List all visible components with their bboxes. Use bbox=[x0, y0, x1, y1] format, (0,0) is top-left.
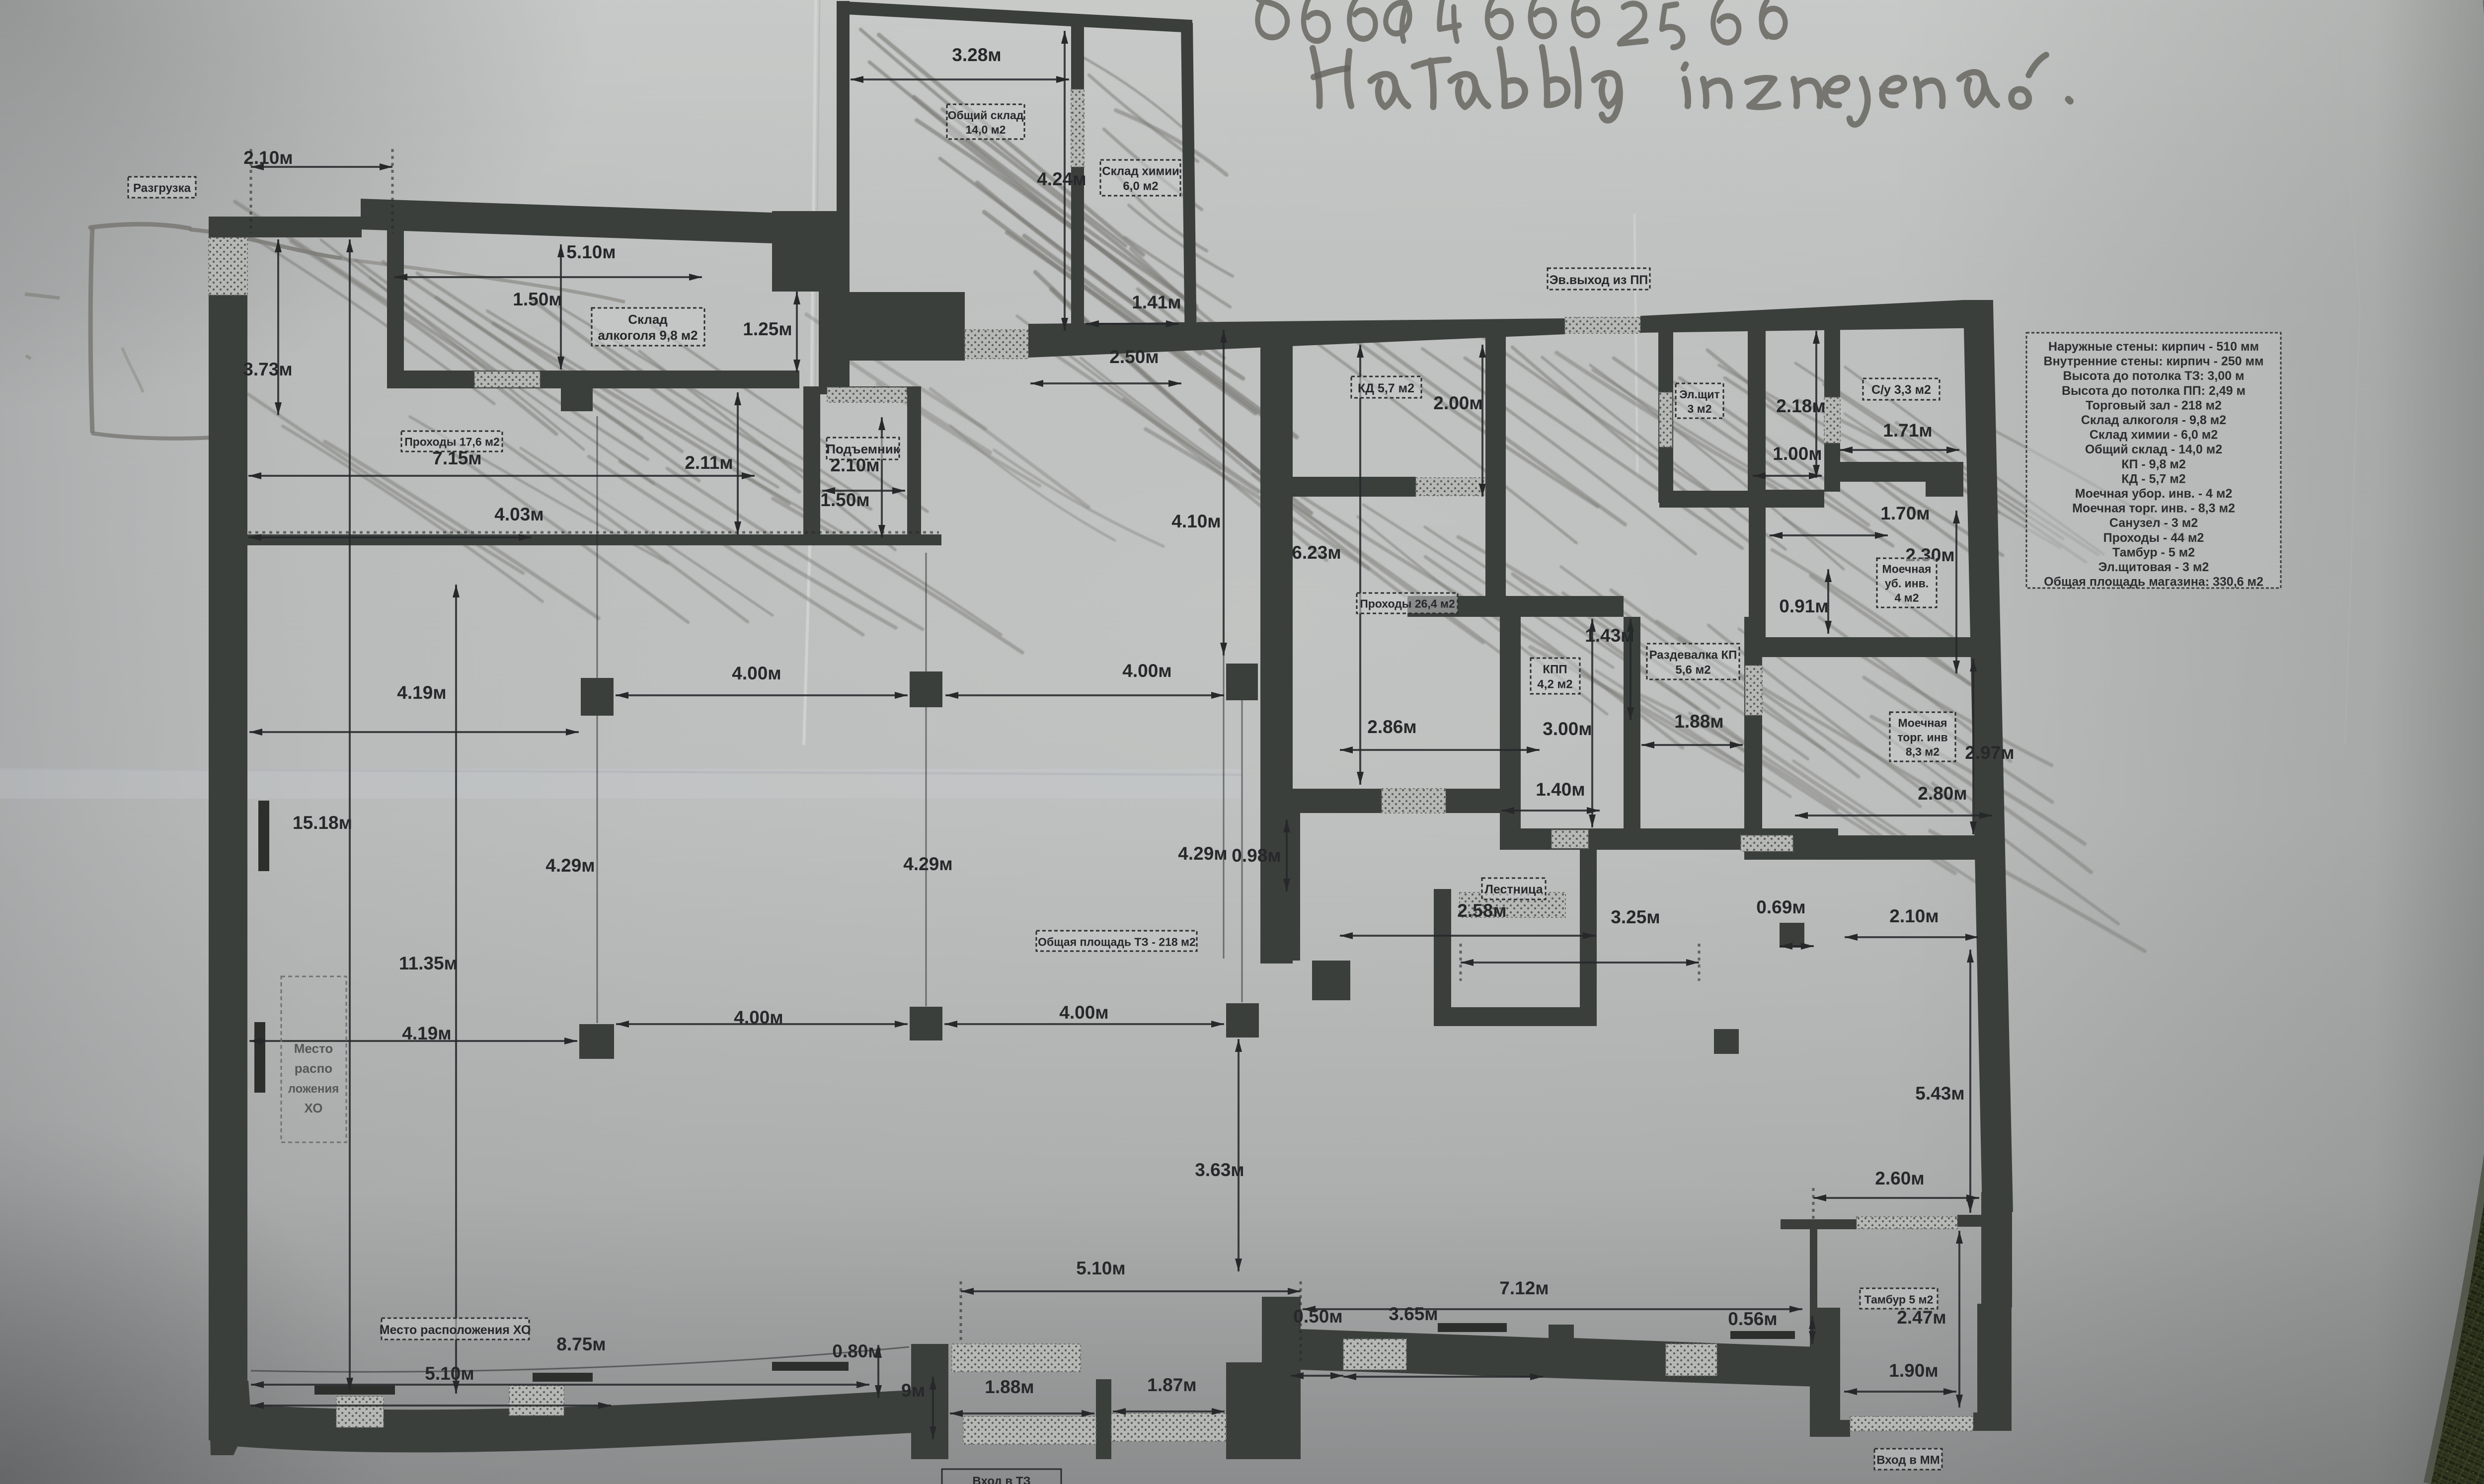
svg-text:0.91м: 0.91м bbox=[1779, 596, 1828, 616]
svg-text:1.40м: 1.40м bbox=[1536, 779, 1585, 800]
svg-text:3 м2: 3 м2 bbox=[1688, 402, 1712, 415]
svg-text:5.10м: 5.10м bbox=[1076, 1258, 1125, 1278]
svg-text:2.10м: 2.10м bbox=[1889, 906, 1939, 926]
svg-text:Проходы 17,6 м2: Проходы 17,6 м2 bbox=[404, 435, 500, 448]
svg-text:Общий склад - 14,0 м2: Общий склад - 14,0 м2 bbox=[2085, 443, 2222, 456]
svg-text:Тамбур - 5 м2: Тамбур - 5 м2 bbox=[2112, 545, 2195, 559]
svg-text:3.25м: 3.25м bbox=[1611, 907, 1660, 927]
svg-text:2.80м: 2.80м bbox=[1918, 783, 1967, 804]
svg-text:Общая площадь магазина: 330,6: Общая площадь магазина: 330,6 м2 bbox=[2044, 575, 2263, 589]
svg-text:6,0 м2: 6,0 м2 bbox=[1123, 180, 1158, 193]
svg-text:1.00м: 1.00м bbox=[1773, 444, 1822, 464]
svg-text:Раздевалка КП: Раздевалка КП bbox=[1649, 649, 1737, 662]
svg-text:4.00м: 4.00м bbox=[734, 1007, 783, 1028]
svg-text:4.24м: 4.24м bbox=[1037, 169, 1086, 189]
svg-text:0.56м: 0.56м bbox=[1728, 1309, 1777, 1329]
svg-text:3.63м: 3.63м bbox=[1195, 1160, 1244, 1180]
svg-text:Проходы - 44 м2: Проходы - 44 м2 bbox=[2103, 531, 2204, 545]
svg-text:КД 5,7 м2: КД 5,7 м2 bbox=[1358, 381, 1414, 395]
svg-text:1.88м: 1.88м bbox=[985, 1377, 1034, 1397]
svg-text:5.10м: 5.10м bbox=[425, 1363, 474, 1384]
svg-text:9м: 9м bbox=[901, 1380, 925, 1401]
svg-text:4.19м: 4.19м bbox=[402, 1023, 451, 1043]
svg-text:2.97м: 2.97м bbox=[1965, 742, 2014, 763]
svg-text:1.90м: 1.90м bbox=[1889, 1360, 1938, 1381]
svg-text:Место расположения ХО: Место расположения ХО bbox=[380, 1323, 531, 1337]
svg-text:Моечная торг. инв. - 8,3 м2: Моечная торг. инв. - 8,3 м2 bbox=[2072, 502, 2235, 516]
svg-text:Тамбур 5 м2: Тамбур 5 м2 bbox=[1864, 1293, 1934, 1306]
svg-text:4 м2: 4 м2 bbox=[1895, 591, 1919, 604]
svg-text:1.50м: 1.50м bbox=[820, 490, 869, 510]
svg-text:Эл.щитовая - 3 м2: Эл.щитовая - 3 м2 bbox=[2098, 560, 2209, 574]
svg-text:Место: Место bbox=[294, 1041, 333, 1056]
svg-text:Эв.выход из ПП: Эв.выход из ПП bbox=[1550, 273, 1648, 287]
svg-text:4.29м: 4.29м bbox=[903, 854, 952, 874]
svg-text:1.88м: 1.88м bbox=[1674, 711, 1723, 732]
svg-text:Моечная: Моечная bbox=[1882, 562, 1932, 575]
svg-text:Моечная убор. инв. - 4 м2: Моечная убор. инв. - 4 м2 bbox=[2075, 487, 2232, 501]
svg-text:4.10м: 4.10м bbox=[1171, 511, 1221, 531]
svg-text:Вход в ММ: Вход в ММ bbox=[1876, 1454, 1940, 1467]
svg-text:Торговый зал - 218 м2: Торговый зал - 218 м2 bbox=[2086, 398, 2222, 412]
svg-text:Наружные стены: кирпич - 510 м: Наружные стены: кирпич - 510 мм bbox=[2048, 340, 2259, 354]
svg-text:4.29м: 4.29м bbox=[545, 855, 595, 876]
svg-text:Высота до потолка ПП: 2,49 м: Высота до потолка ПП: 2,49 м bbox=[2062, 384, 2246, 398]
svg-text:7.12м: 7.12м bbox=[1499, 1278, 1549, 1298]
svg-text:Моечная: Моечная bbox=[1898, 716, 1947, 729]
svg-text:0.69м: 0.69м bbox=[1756, 897, 1805, 917]
svg-text:2.58м: 2.58м bbox=[1457, 900, 1506, 921]
svg-text:2.50м: 2.50м bbox=[1109, 347, 1159, 367]
svg-text:3.00м: 3.00м bbox=[1543, 719, 1592, 739]
svg-text:Вход в ТЗ: Вход в ТЗ bbox=[972, 1475, 1030, 1484]
svg-text:0.98м: 0.98м bbox=[1232, 845, 1281, 866]
svg-text:1.71м: 1.71м bbox=[1883, 420, 1932, 441]
svg-text:1.87м: 1.87м bbox=[1147, 1375, 1196, 1395]
svg-text:4.29м: 4.29м bbox=[1178, 843, 1227, 864]
svg-text:1.41м: 1.41м bbox=[1132, 292, 1181, 312]
svg-text:4.00м: 4.00м bbox=[732, 663, 781, 683]
svg-text:4.00м: 4.00м bbox=[1059, 1002, 1108, 1023]
svg-text:4.03м: 4.03м bbox=[494, 504, 543, 524]
svg-text:КД - 5,7 м2: КД - 5,7 м2 bbox=[2121, 472, 2185, 486]
svg-text:5.43м: 5.43м bbox=[1915, 1083, 1964, 1104]
svg-text:Внутренние стены: кирпич - 250: Внутренние стены: кирпич - 250 мм bbox=[2044, 355, 2264, 369]
svg-text:4.00м: 4.00м bbox=[1122, 661, 1171, 681]
svg-text:Разгрузка: Разгрузка bbox=[133, 182, 191, 195]
svg-text:1.50м: 1.50м bbox=[513, 289, 562, 309]
svg-text:Склад алкоголя - 9,8 м2: Склад алкоголя - 9,8 м2 bbox=[2081, 413, 2226, 427]
svg-text:3.65м: 3.65м bbox=[1389, 1304, 1438, 1324]
svg-text:ХО: ХО bbox=[305, 1101, 323, 1115]
svg-text:6.23м: 6.23м bbox=[1292, 542, 1341, 563]
svg-text:Высота до потолка ТЗ: 3,00 м: Высота до потолка ТЗ: 3,00 м bbox=[2063, 369, 2245, 383]
svg-text:КП - 9,8 м2: КП - 9,8 м2 bbox=[2121, 457, 2186, 471]
svg-text:11.35м: 11.35м bbox=[399, 953, 458, 973]
svg-text:Общий склад: Общий склад bbox=[948, 109, 1024, 122]
svg-text:1.43м: 1.43м bbox=[1585, 625, 1634, 646]
svg-text:КПП: КПП bbox=[1543, 663, 1567, 676]
svg-text:2.47м: 2.47м bbox=[1897, 1307, 1946, 1328]
svg-text:ложения: ложения bbox=[288, 1082, 339, 1096]
svg-text:2.00м: 2.00м bbox=[1433, 393, 1482, 413]
svg-text:С/у 3,3 м2: С/у 3,3 м2 bbox=[1871, 383, 1931, 397]
svg-text:2.18м: 2.18м bbox=[1776, 396, 1825, 416]
svg-text:4,2 м2: 4,2 м2 bbox=[1537, 678, 1572, 691]
svg-text:3.73м: 3.73м bbox=[243, 359, 292, 379]
svg-text:5,6 м2: 5,6 м2 bbox=[1675, 664, 1710, 677]
svg-text:1.25м: 1.25м bbox=[743, 319, 792, 339]
svg-text:Лестница: Лестница bbox=[1484, 883, 1543, 896]
svg-text:0.80м: 0.80м bbox=[832, 1341, 881, 1361]
svg-text:Проходы 26,4 м2: Проходы 26,4 м2 bbox=[1360, 597, 1455, 610]
svg-text:4.19м: 4.19м bbox=[397, 682, 446, 703]
svg-text:Санузел - 3 м2: Санузел - 3 м2 bbox=[2109, 516, 2198, 530]
svg-text:14,0 м2: 14,0 м2 bbox=[966, 123, 1006, 136]
svg-text:2.10м: 2.10м bbox=[243, 148, 293, 168]
svg-text:распо: распо bbox=[295, 1061, 332, 1076]
svg-text:1.70м: 1.70м bbox=[1880, 503, 1930, 523]
svg-text:2.86м: 2.86м bbox=[1367, 717, 1416, 737]
svg-text:3.28м: 3.28м bbox=[952, 45, 1001, 65]
svg-text:8,3 м2: 8,3 м2 bbox=[1906, 745, 1940, 758]
svg-text:15.18м: 15.18м bbox=[293, 813, 352, 833]
svg-text:Подъемник: Подъемник bbox=[826, 442, 900, 456]
svg-text:Склад химии - 6,0 м2: Склад химии - 6,0 м2 bbox=[2090, 428, 2218, 442]
svg-text:торг. инв: торг. инв bbox=[1897, 731, 1947, 743]
svg-text:Склад химии: Склад химии bbox=[1102, 165, 1179, 178]
svg-text:2.11м: 2.11м bbox=[685, 452, 733, 473]
svg-text:2.60м: 2.60м bbox=[1875, 1168, 1924, 1188]
svg-text:0.50м: 0.50м bbox=[1293, 1306, 1342, 1327]
svg-text:5.10м: 5.10м bbox=[566, 242, 616, 262]
svg-text:Эл.щит: Эл.щит bbox=[1679, 388, 1720, 401]
svg-text:Склад: Склад bbox=[628, 312, 668, 327]
svg-text:8.75м: 8.75м bbox=[556, 1334, 606, 1354]
svg-text:алкоголя 9,8 м2: алкоголя 9,8 м2 bbox=[598, 328, 698, 343]
svg-text:уб. инв.: уб. инв. bbox=[1885, 577, 1929, 590]
svg-text:Общая площадь ТЗ - 218 м2: Общая площадь ТЗ - 218 м2 bbox=[1038, 935, 1196, 948]
